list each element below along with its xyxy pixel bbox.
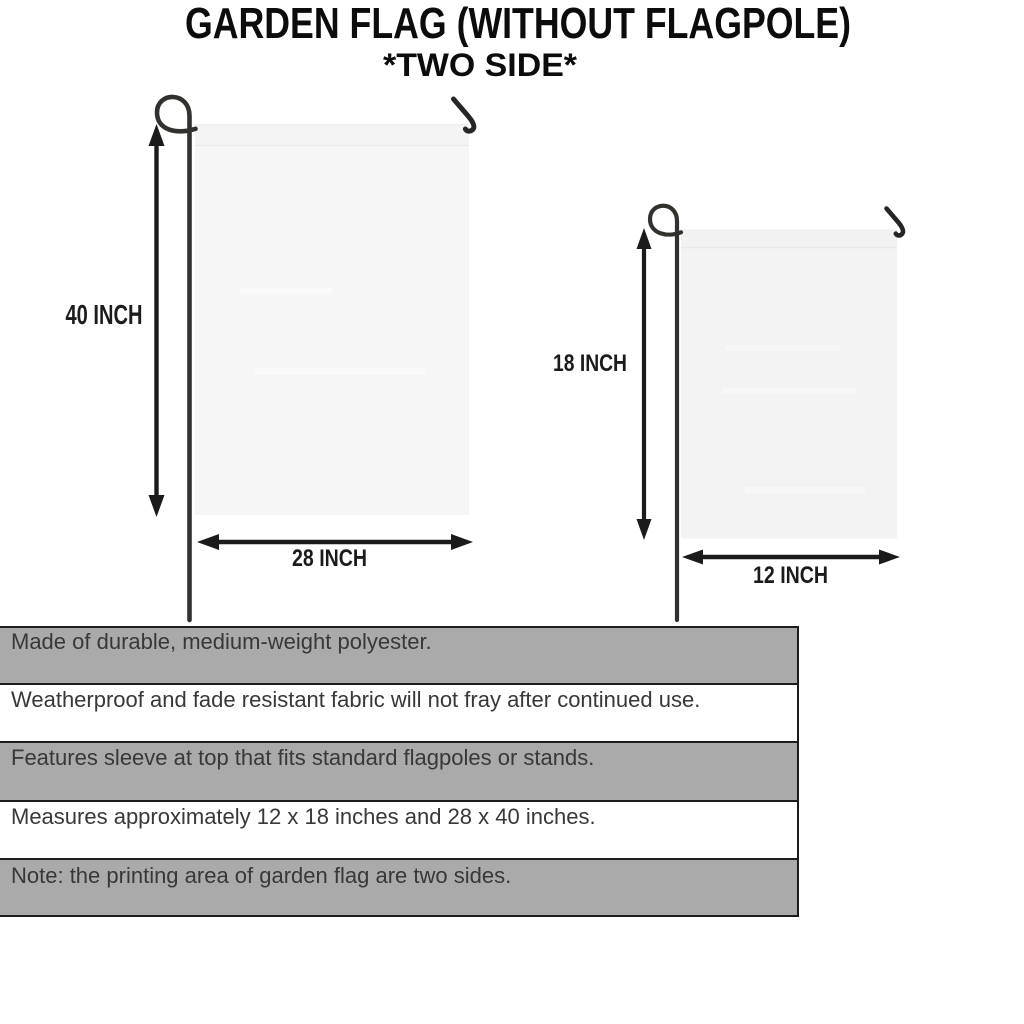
svg-text:18 INCH: 18 INCH [553, 350, 627, 377]
svg-text:28 INCH: 28 INCH [292, 545, 367, 572]
svg-text:40 INCH: 40 INCH [66, 299, 143, 330]
svg-text:GARDEN FLAG (WITHOUT FLAGPOLE): GARDEN FLAG (WITHOUT FLAGPOLE) [185, 0, 851, 48]
svg-text:*TWO SIDE*: *TWO SIDE* [383, 47, 578, 83]
svg-text:12 INCH: 12 INCH [753, 562, 828, 589]
